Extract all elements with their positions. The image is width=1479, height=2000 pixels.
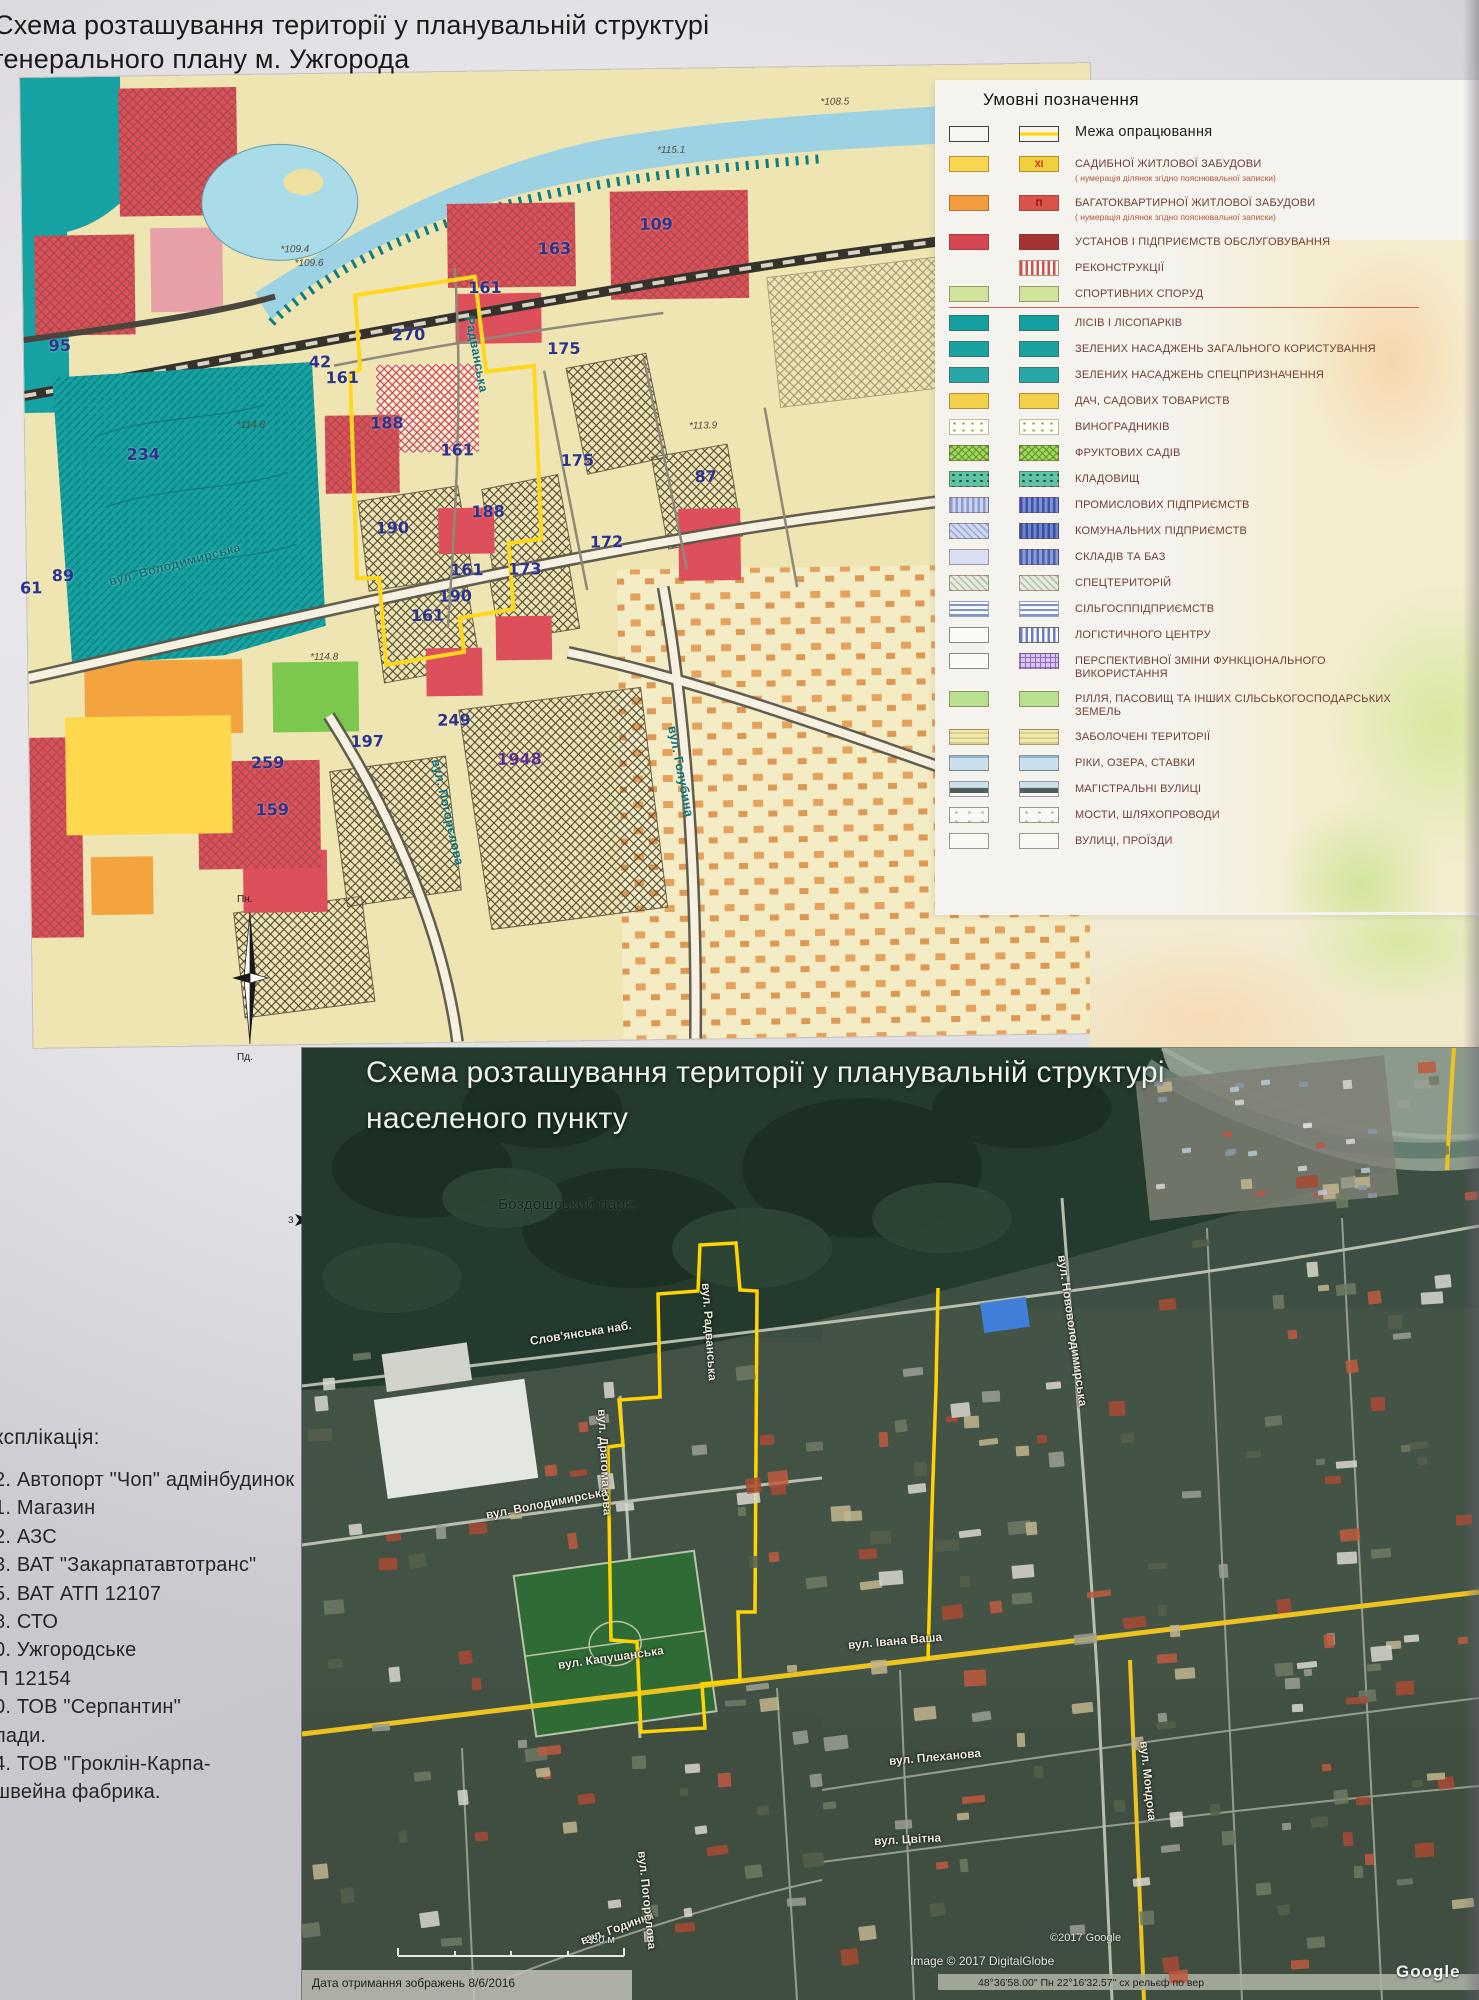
page-title: Схема розташування території у плануваль… <box>0 8 814 76</box>
building <box>1356 1797 1371 1806</box>
legend-swatch <box>1019 367 1059 383</box>
legend-label: ФРУКТОВИХ САДІВ <box>1075 445 1181 460</box>
legend-row: МАГІСТРАЛЬНІ ВУЛИЦІ <box>949 781 1469 797</box>
google-credit: ©2017 Google <box>1050 1932 1121 1944</box>
explication-item: 3. ВАТ "Закарпатавтотранс" <box>0 1551 324 1579</box>
building <box>408 1553 427 1569</box>
legend-swatch <box>949 755 989 771</box>
map-number-label: 159 <box>255 800 289 819</box>
legend-label: Межа опрацювання <box>1075 126 1212 139</box>
legend-label: ПЕРСПЕКТИВНОЇ ЗМІНИ ФУНКЦІОНАЛЬНОГО ВИКО… <box>1075 653 1405 681</box>
building <box>935 1539 959 1551</box>
building <box>1162 1957 1179 1974</box>
legend-swatch <box>949 234 989 250</box>
building <box>1210 1803 1221 1816</box>
building <box>679 1788 688 1796</box>
building <box>1245 1450 1261 1458</box>
building <box>385 1533 401 1542</box>
legend-divider <box>949 307 1419 308</box>
building <box>806 1441 824 1451</box>
page-title-line2: генерального плану м. Ужгорода <box>0 42 814 76</box>
legend-row: ФРУКТОВИХ САДІВ <box>949 445 1469 461</box>
building <box>518 1740 528 1748</box>
legend-row: СПЕЦТЕРИТОРІЙ <box>949 575 1469 591</box>
satellite-image: Схема розташування території у плануваль… <box>302 1048 1479 2000</box>
legend-row: ЗЕЛЕНИХ НАСАДЖЕНЬ СПЕЦПРИЗНАЧЕННЯ <box>949 367 1469 383</box>
building <box>436 1525 446 1540</box>
legend-swatch <box>949 497 989 513</box>
building <box>809 1774 822 1788</box>
legend-label: БАГАТОКВАРТИРНОЇ ЖИТЛОВОЇ ЗАБУДОВИ( нуме… <box>1075 195 1315 224</box>
building <box>738 1506 747 1516</box>
legend-swatch <box>1019 523 1059 539</box>
building <box>1108 1401 1125 1417</box>
explication-item: 4. ТОВ "Гроклін-Карпа- <box>0 1750 324 1778</box>
map-number-label: 175 <box>561 451 595 470</box>
legend-swatch <box>1019 497 1059 513</box>
map-number-label: 270 <box>392 325 426 344</box>
legend-label: ЛОГІСТИЧНОГО ЦЕНТРУ <box>1075 627 1211 642</box>
building <box>371 1723 389 1731</box>
building <box>895 1819 913 1829</box>
legend-swatch <box>949 471 989 487</box>
explication-item: П 12154 <box>0 1665 324 1693</box>
legend-row: ДАЧ, САДОВИХ ТОВАРИСТВ <box>949 393 1469 409</box>
digitalglobe-credit: Image © 2017 DigitalGlobe <box>910 1954 1054 1968</box>
building <box>787 1897 806 1906</box>
building <box>1353 1866 1363 1878</box>
building <box>957 1813 969 1821</box>
building <box>1325 1475 1342 1483</box>
building <box>870 1531 891 1545</box>
building <box>1182 1490 1201 1498</box>
building <box>314 1395 328 1411</box>
map-number-label: 234 <box>126 445 160 464</box>
map-number-label: 190 <box>375 518 409 537</box>
building <box>1045 1381 1060 1390</box>
satellite-title-line2: населеного пункту <box>366 1096 1476 1142</box>
map-number-label: 190 <box>438 586 472 605</box>
building <box>822 1801 835 1809</box>
building <box>1333 1789 1349 1804</box>
legend-rows: Межа опрацюванняXIСАДИБНОЇ ЖИТЛОВОЇ ЗАБУ… <box>949 126 1469 859</box>
legend-swatch <box>949 627 989 643</box>
legend-swatch <box>949 286 989 302</box>
park-label: Боздошський парк. <box>498 1196 637 1213</box>
legend-swatch <box>1019 755 1059 771</box>
scale-label: 250 м <box>586 1934 615 1946</box>
legend-swatch <box>949 781 989 797</box>
building <box>989 1600 1002 1614</box>
building <box>1307 1262 1319 1278</box>
building <box>1303 1668 1312 1676</box>
building <box>1157 1604 1167 1616</box>
building <box>1337 1552 1357 1566</box>
legend-label: СПЕЦТЕРИТОРІЙ <box>1075 575 1171 590</box>
building <box>1368 1192 1377 1198</box>
building <box>323 1599 344 1615</box>
building <box>1226 1148 1235 1154</box>
building <box>471 1678 481 1691</box>
building <box>1388 1315 1403 1330</box>
map-number-label: 161 <box>450 560 484 579</box>
explication-item: лади. <box>0 1722 324 1750</box>
building <box>1174 1667 1195 1679</box>
building <box>1396 1681 1415 1696</box>
legend-label: РІЛЛЯ, ПАСОВИЩ ТА ІНШИХ СІЛЬСЬКОГОСПОДАР… <box>1075 691 1405 719</box>
legend-row: СКЛАДІВ ТА БАЗ <box>949 549 1469 565</box>
building <box>982 1391 1000 1403</box>
building <box>1140 1910 1155 1925</box>
building <box>1148 1562 1167 1569</box>
building <box>1222 1830 1237 1845</box>
building <box>1361 1167 1370 1173</box>
building <box>858 1925 877 1941</box>
building <box>1158 1712 1168 1722</box>
legend-swatch <box>1019 234 1059 250</box>
building <box>379 1558 397 1571</box>
building <box>399 1830 408 1842</box>
building <box>308 1428 332 1442</box>
building <box>1342 1831 1353 1846</box>
building <box>1335 1192 1348 1208</box>
legend-swatch <box>1019 601 1059 617</box>
legend-swatch <box>949 601 989 617</box>
building <box>1296 1175 1319 1189</box>
map-number-label: 161 <box>440 440 474 459</box>
building <box>1049 1451 1066 1467</box>
legend-swatch <box>949 260 989 276</box>
map-elevation-label: *109.6 <box>295 258 324 269</box>
map-number-label: 249 <box>437 710 471 729</box>
map-elevation-label: *114.8 <box>310 652 338 663</box>
building <box>802 1852 824 1868</box>
building <box>879 1432 889 1448</box>
building <box>1421 1292 1444 1305</box>
legend-row: ЛОГІСТИЧНОГО ЦЕНТРУ <box>949 627 1469 643</box>
map-number-label: 89 <box>52 566 75 585</box>
building <box>1016 1445 1029 1456</box>
building <box>604 1382 615 1398</box>
map-number-label: 161 <box>468 278 502 297</box>
building <box>458 1790 470 1805</box>
legend-row: ЗАБОЛОЧЕНІ ТЕРИТОРІЇ <box>949 729 1469 745</box>
explication: ксплікація: 2. Автопорт "Чоп" адмінбудин… <box>0 1426 324 1807</box>
building <box>744 1864 763 1879</box>
building <box>859 1548 877 1559</box>
building <box>1438 1146 1448 1155</box>
legend-label: ЗЕЛЕНИХ НАСАДЖЕНЬ СПЕЦПРИЗНАЧЕННЯ <box>1075 367 1324 382</box>
map-number-label: 161 <box>325 368 359 387</box>
legend-swatch <box>1019 419 1059 435</box>
compass-south-label: Пд. <box>237 1052 253 1063</box>
building <box>562 1822 577 1834</box>
explication-item: 0. Ужгородське <box>0 1636 324 1664</box>
legend-swatch <box>949 653 989 669</box>
legend-swatch <box>949 833 989 849</box>
map-number-label: 188 <box>471 502 505 521</box>
legend-row: СПОРТИВНИХ СПОРУД <box>949 286 1469 302</box>
legend-label: ЗАБОЛОЧЕНІ ТЕРИТОРІЇ <box>1075 729 1210 744</box>
compass-north-label: Пн. <box>237 894 253 905</box>
legend-title: Умовні позначення <box>983 90 1139 110</box>
building <box>323 1378 336 1391</box>
legend-swatch <box>1019 341 1059 357</box>
compass-side-letter: З <box>288 1215 293 1225</box>
building <box>327 1658 343 1669</box>
map-elevation-label: *108.5 <box>820 96 849 107</box>
building <box>684 1907 693 1917</box>
legend-row: РІКИ, ОЗЕРА, СТАВКИ <box>949 755 1469 771</box>
building <box>1322 1763 1332 1771</box>
legend-row: ВИНОГРАДНИКІВ <box>949 419 1469 435</box>
building <box>1011 1593 1032 1605</box>
map-number-label: 161 <box>411 606 445 625</box>
legend-label: МАГІСТРАЛЬНІ ВУЛИЦІ <box>1075 781 1201 796</box>
legend-swatch <box>1019 729 1059 745</box>
legend-label: МОСТИ, ШЛЯХОПРОВОДИ <box>1075 807 1220 822</box>
building <box>1132 1877 1150 1887</box>
map-number-label: 109 <box>639 214 673 233</box>
explication-item: 2. Автопорт "Чоп" адмінбудинок <box>0 1466 324 1494</box>
building <box>414 1771 431 1781</box>
building <box>914 1462 928 1477</box>
legend-label: ЗЕЛЕНИХ НАСАДЖЕНЬ ЗАГАЛЬНОГО КОРИСТУВАНН… <box>1075 341 1376 356</box>
legend-swatch <box>1019 471 1059 487</box>
building <box>535 1767 550 1778</box>
building <box>1435 1274 1452 1289</box>
building <box>1218 1563 1228 1578</box>
satellite-title-line1: Схема розташування території у плануваль… <box>366 1050 1476 1096</box>
building <box>1323 1634 1334 1648</box>
legend-label: ВИНОГРАДНИКІВ <box>1075 419 1170 434</box>
map-number-label: 95 <box>48 336 71 355</box>
legend-row: РІЛЛЯ, ПАСОВИЩ ТА ІНШИХ СІЛЬСЬКОГОСПОДАР… <box>949 691 1469 719</box>
building <box>1311 1816 1329 1828</box>
building <box>388 1666 400 1682</box>
explication-item: 1. Магазин <box>0 1494 324 1522</box>
building <box>685 1764 700 1774</box>
compass-needle <box>224 908 276 1048</box>
legend-row: ВУЛИЦІ, ПРОЇЗДИ <box>949 833 1469 849</box>
building <box>1278 1905 1291 1916</box>
building <box>1335 1283 1356 1296</box>
building <box>787 1665 797 1672</box>
building <box>1284 1678 1299 1690</box>
explication-item: 0. ТОВ "Серпантин" <box>0 1693 324 1721</box>
building <box>313 1863 329 1880</box>
map-number-label: 1948 <box>497 749 542 769</box>
capture-date: Дата отримання зображень 8/6/2016 <box>312 1976 515 1990</box>
building <box>616 1502 634 1511</box>
map-number-label: 163 <box>538 239 572 258</box>
map-number-label: 197 <box>350 731 384 750</box>
legend-swatch <box>1019 691 1059 707</box>
map-elevation-label: *114.8 <box>237 420 265 431</box>
legend-label: СПОРТИВНИХ СПОРУД <box>1075 286 1203 301</box>
building <box>1318 1189 1327 1195</box>
building <box>745 1477 762 1494</box>
google-logo: Google <box>1396 1962 1461 1982</box>
building <box>459 1650 473 1665</box>
legend-swatch <box>949 126 989 142</box>
legend-label: КОМУНАЛЬНИХ ПІДПРИЄМСТВ <box>1075 523 1247 538</box>
legend-swatch <box>949 523 989 539</box>
building <box>1358 1184 1367 1190</box>
building <box>1417 1456 1427 1465</box>
building <box>1287 1329 1297 1339</box>
building <box>771 1485 786 1496</box>
building <box>474 1832 487 1842</box>
legend-swatch <box>1019 126 1059 142</box>
legend-swatch <box>1019 445 1059 461</box>
building <box>1011 1564 1034 1579</box>
page-title-line1: Схема розташування території у плануваль… <box>0 8 814 42</box>
legend-label: СІЛЬГОСППІДПРИЄМСТВ <box>1075 601 1214 616</box>
building <box>675 1922 696 1933</box>
map-elevation-label: *113.9 <box>689 420 717 431</box>
building <box>1367 1663 1382 1671</box>
coordinates-line: 48°36'58.00" Пн 22°16'32.57" сх рельєф п… <box>978 1977 1204 1989</box>
building <box>1415 1843 1435 1859</box>
building <box>1025 1522 1037 1536</box>
legend-row: КЛАДОВИЩ <box>949 471 1469 487</box>
building <box>302 1922 321 1938</box>
building <box>419 1910 440 1927</box>
map-number-label: 87 <box>694 467 717 486</box>
building <box>929 1902 946 1917</box>
legend-row: ПБАГАТОКВАРТИРНОЇ ЖИТЛОВОЇ ЗАБУДОВИ( нум… <box>949 195 1469 224</box>
legend-swatch <box>949 341 989 357</box>
map-number-label: 173 <box>508 559 542 578</box>
legend-swatch <box>1019 833 1059 849</box>
legend-swatch <box>1019 807 1059 823</box>
building <box>792 1730 809 1745</box>
map-number-label: 175 <box>547 339 581 358</box>
legend-swatch <box>949 393 989 409</box>
legend-swatch <box>1019 781 1059 797</box>
legend-row: Межа опрацювання <box>949 126 1469 142</box>
satellite-title: Схема розташування території у плануваль… <box>366 1050 1476 1142</box>
building <box>1282 1823 1292 1830</box>
legend-label: СКЛАДІВ ТА БАЗ <box>1075 549 1166 564</box>
building <box>1367 1290 1382 1305</box>
legend-row: XIСАДИБНОЇ ЖИТЛОВОЇ ЗАБУДОВИ( нумерація … <box>949 156 1469 185</box>
building <box>1273 1295 1285 1310</box>
map-number-label: 259 <box>251 753 285 772</box>
building <box>1371 1548 1391 1559</box>
building <box>1365 1854 1375 1866</box>
building <box>1340 1177 1355 1189</box>
legend-label: РЕКОНСТРУКЦІЇ <box>1075 260 1164 275</box>
legend-swatch <box>949 729 989 745</box>
building <box>964 1669 987 1686</box>
building <box>1274 1662 1293 1676</box>
legend-swatch <box>949 691 989 707</box>
building <box>950 1402 971 1418</box>
building <box>468 1522 487 1534</box>
legend-label: КЛАДОВИЩ <box>1075 471 1140 486</box>
building <box>1412 1779 1424 1787</box>
map-elevation-label: *109.4 <box>280 244 309 255</box>
building <box>840 1949 859 1967</box>
legend-swatch <box>1019 260 1059 276</box>
legend-row: УСТАНОВ І ПІДПРИЄМСТВ ОБСЛУГОВУВАННЯ <box>949 234 1469 250</box>
building <box>1170 1625 1180 1638</box>
building <box>960 1575 971 1586</box>
legend-swatch <box>949 807 989 823</box>
building <box>1370 1645 1392 1662</box>
building <box>348 1524 362 1536</box>
building <box>1339 1528 1360 1542</box>
building <box>1037 1435 1048 1444</box>
building <box>830 1505 851 1522</box>
building <box>1241 1179 1253 1189</box>
legend-row: МОСТИ, ШЛЯХОПРОВОДИ <box>949 807 1469 823</box>
compass-rose: Пн. Пд. <box>224 896 276 1066</box>
building <box>1033 1766 1043 1778</box>
building <box>1346 1360 1359 1374</box>
legend-row: КОМУНАЛЬНИХ ПІДПРИЄМСТВ <box>949 523 1469 539</box>
document-page: Схема розташування території у плануваль… <box>0 0 1479 2000</box>
map-number-label: 188 <box>370 413 404 432</box>
legend-swatch <box>1019 393 1059 409</box>
legend-swatch <box>949 575 989 591</box>
legend-swatch: XI <box>1019 156 1059 172</box>
legend-row: ПЕРСПЕКТИВНОЇ ЗМІНИ ФУНКЦІОНАЛЬНОГО ВИКО… <box>949 653 1469 681</box>
underlying-map-fragment-bottom <box>1090 915 1479 1048</box>
explication-item: швейна фабрика. <box>0 1778 324 1806</box>
legend-row: СІЛЬГОСППІДПРИЄМСТВ <box>949 601 1469 617</box>
legend-swatch <box>949 367 989 383</box>
legend-swatch <box>949 445 989 461</box>
legend-row: ЛІСІВ І ЛІСОПАРКІВ <box>949 315 1469 331</box>
building <box>769 1551 780 1562</box>
building <box>748 1556 758 1568</box>
building <box>1276 1598 1292 1614</box>
legend-swatch: П <box>1019 195 1059 211</box>
legend-swatch <box>1019 627 1059 643</box>
building <box>1182 1147 1191 1153</box>
map-elevation-label: *115.1 <box>657 145 685 156</box>
legend-label: ПРОМИСЛОВИХ ПІДПРИЄМСТВ <box>1075 497 1249 512</box>
building <box>1169 1811 1183 1827</box>
explication-items: 2. Автопорт "Чоп" адмінбудинок1. Магазин… <box>0 1466 324 1807</box>
building <box>941 1604 964 1620</box>
legend-label: УСТАНОВ І ПІДПРИЄМСТВ ОБСЛУГОВУВАННЯ <box>1075 234 1330 249</box>
legend-panel: Умовні позначення Межа опрацюванняXIСАДИ… <box>935 80 1479 915</box>
building <box>878 1570 903 1586</box>
building <box>936 1861 949 1869</box>
photo-edge-shadow <box>1463 0 1479 2000</box>
legend-label: ВУЛИЦІ, ПРОЇЗДИ <box>1075 833 1173 848</box>
building <box>1156 1184 1165 1190</box>
building <box>694 1825 707 1834</box>
legend-swatch <box>949 156 989 172</box>
legend-swatch <box>949 549 989 565</box>
building <box>735 1365 756 1381</box>
building <box>1291 1960 1309 1970</box>
explication-item: 8. СТО <box>0 1608 324 1636</box>
building <box>964 1416 980 1429</box>
building <box>913 1706 936 1721</box>
explication-heading: ксплікація: <box>0 1426 324 1450</box>
building <box>717 1773 731 1788</box>
building <box>579 1422 589 1433</box>
legend-swatch <box>1019 575 1059 591</box>
map-number-label: 172 <box>590 532 624 551</box>
building <box>632 1756 646 1770</box>
